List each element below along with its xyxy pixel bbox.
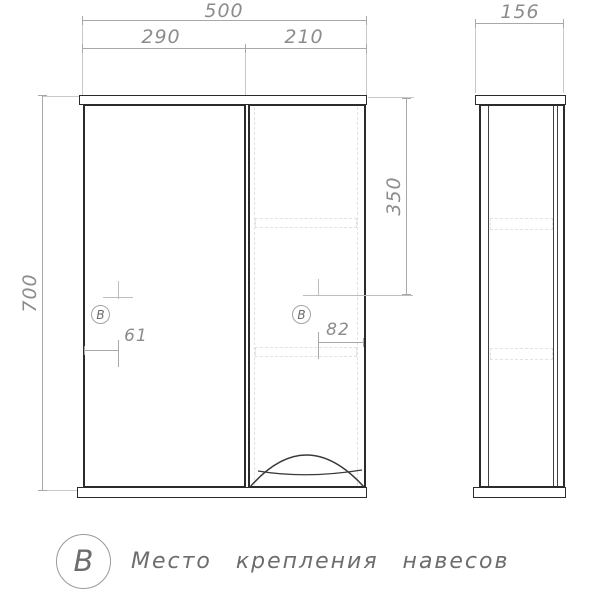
dim-tick (38, 95, 47, 96)
mount-mark-circle-left: В (91, 305, 110, 324)
dim-extension-right-mount (318, 332, 319, 359)
side-hidden-shelf-upper (490, 218, 553, 230)
dim-right-section-label: 210 (284, 26, 323, 48)
extension-line-side-left (475, 19, 476, 93)
curved-shelf-outer-arc (250, 455, 364, 487)
dim-line-height (42, 95, 43, 491)
cabinet-technical-drawing: 500 290 210 700 350 В 61 В 82 (0, 0, 600, 600)
dim-line-sections (82, 48, 367, 49)
hidden-shelf-lower (255, 347, 357, 357)
mount-mark-circle-right: В (292, 305, 311, 324)
mount-mark-letter: В (96, 309, 104, 321)
dim-height-label: 700 (19, 273, 41, 312)
side-back-panel-line (488, 106, 489, 486)
dim-tick (245, 44, 246, 53)
side-plinth (473, 487, 566, 498)
dim-tick (84, 346, 85, 355)
mount-crosshair-vertical (318, 279, 319, 296)
hidden-line-right (357, 107, 358, 485)
extension-line-side-right (563, 19, 564, 93)
front-right-section (248, 104, 366, 488)
extension-line-top (42, 96, 79, 97)
dim-tick (402, 98, 411, 99)
side-hidden-shelf-lower (490, 348, 553, 360)
legend-mark-letter: В (74, 547, 94, 576)
front-left-door (83, 104, 246, 488)
mount-crosshair-horizontal (303, 295, 413, 296)
extension-line-right (366, 16, 367, 95)
side-door-edge-line (557, 106, 558, 486)
dim-line-depth (475, 23, 564, 24)
dim-depth-label: 156 (500, 1, 539, 23)
dim-tick (38, 490, 47, 491)
dim-total-width-label: 500 (204, 0, 243, 22)
mount-mark-letter: В (297, 309, 305, 321)
dim-left-mount-label: 61 (124, 326, 148, 346)
extension-line-bottom (42, 490, 77, 491)
dim-tick (363, 338, 364, 347)
hidden-line-left (254, 107, 255, 485)
dim-extension-left-mount (118, 340, 119, 367)
dim-line-mount-height (406, 98, 407, 295)
hidden-shelf-upper (255, 218, 357, 228)
legend-text: Место крепления навесов (131, 549, 509, 574)
dim-tick (475, 19, 476, 28)
dim-line-left-mount (84, 350, 118, 351)
side-door-edge-line (553, 106, 554, 486)
dim-left-section-label: 290 (141, 26, 180, 48)
dim-tick (82, 44, 83, 53)
dim-mount-height-label: 350 (383, 176, 405, 215)
dim-tick (366, 44, 367, 53)
dim-line-right-mount (318, 342, 364, 343)
dim-tick (366, 16, 367, 25)
mount-crosshair-horizontal (103, 297, 133, 298)
extension-line-left (82, 16, 83, 95)
dim-tick (82, 16, 83, 25)
legend-mark-circle: В (56, 534, 111, 589)
front-plinth (77, 487, 367, 498)
dim-tick (563, 19, 564, 28)
dim-right-mount-label: 82 (326, 320, 350, 340)
